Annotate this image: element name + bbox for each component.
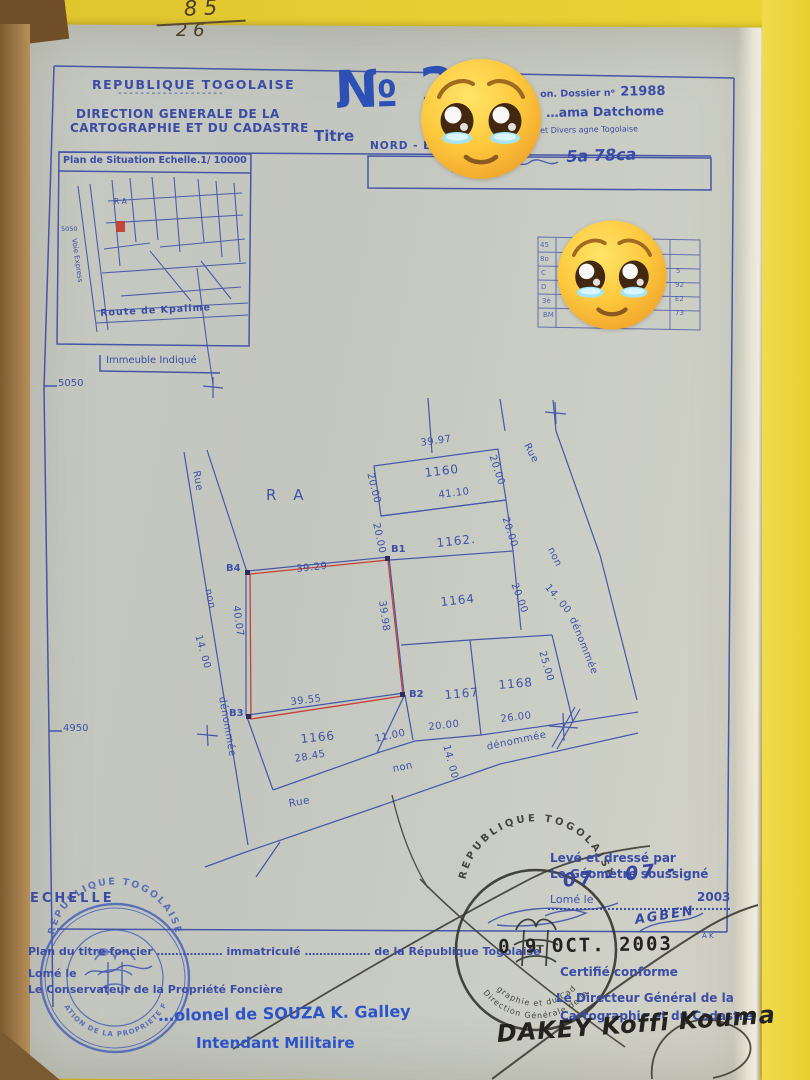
situation-coord-label: 5050 bbox=[61, 226, 78, 233]
table-fragment: 8o bbox=[540, 256, 549, 263]
direction-line1: DIRECTION GENERALE DE LA bbox=[76, 108, 280, 121]
table-fragment: D bbox=[541, 284, 546, 291]
red-parcel-outline bbox=[250, 560, 403, 719]
situation-ra-label: R A bbox=[114, 198, 127, 206]
dossier-prefix: on. Dossier nᵒ bbox=[540, 88, 615, 100]
borne-b2: B2 bbox=[409, 690, 424, 701]
certifie-conforme: Certifié conforme bbox=[560, 966, 678, 979]
zone-ra-label: R A bbox=[266, 488, 309, 504]
table-value: 73 bbox=[675, 310, 684, 317]
echelle-label: ECHELLE bbox=[30, 892, 115, 906]
title-deed-line: Plan du titre foncier ……………… immatriculé… bbox=[28, 946, 541, 958]
surface-value: 5a 78ca bbox=[566, 147, 637, 166]
titre-label: Titre bbox=[314, 129, 354, 145]
table-value: 5 bbox=[676, 268, 680, 275]
situation-title: Plan de Situation Echelle.1/ 10000 bbox=[63, 156, 247, 166]
printed-year: 2003 bbox=[697, 891, 730, 904]
table-value: E2 bbox=[675, 296, 684, 303]
parcel-1168: 1168 bbox=[498, 676, 534, 692]
dossier-number: 21988 bbox=[620, 84, 665, 100]
table-fragment: 45 bbox=[540, 242, 549, 249]
immeuble-indique-label: Immeuble Indiqué bbox=[106, 356, 197, 367]
boundary-corner-markers bbox=[245, 556, 405, 719]
table-fragment: 3è bbox=[542, 298, 551, 305]
borne-b4: B4 bbox=[226, 564, 241, 575]
dossier-line: on. Dossier nᵒ 21988 bbox=[540, 82, 666, 101]
borne-b1: B1 bbox=[391, 545, 406, 556]
photo-of-cadastral-plan: 2 6 8 5 bbox=[0, 0, 810, 1080]
date-stamp: 0 9 OCT. 2003 bbox=[498, 935, 673, 958]
situation-map-lines bbox=[78, 177, 248, 384]
directeur-line1: Le Directeur Général de la bbox=[556, 992, 734, 1005]
direction-line2: CARTOGRAPHIE ET DU CADASTRE bbox=[70, 122, 309, 135]
republic-underline: ------------------- bbox=[118, 89, 225, 100]
face-holding-back-tears-emoji bbox=[416, 54, 546, 184]
parcel-1167: 1167 bbox=[444, 686, 480, 702]
grid-coordinate-top: 5050 bbox=[58, 379, 83, 390]
intendant-title: Intendant Militaire bbox=[196, 1036, 355, 1052]
conservateur-line: Le Conservateur de la Propriété Foncière bbox=[28, 984, 283, 996]
street-name-left: Rue bbox=[190, 470, 204, 492]
holder-name-line2: et Divers agne Togolaise bbox=[540, 125, 638, 135]
table-fragment: C bbox=[541, 270, 546, 277]
table-value: 92 bbox=[675, 282, 684, 289]
holder-name-line: …ama Datchome bbox=[546, 104, 664, 119]
grid-coordinate-bottom: 4950 bbox=[63, 724, 88, 735]
signature-initials: A K bbox=[702, 933, 714, 940]
borne-b3: B3 bbox=[229, 709, 244, 720]
situation-parcel-marker bbox=[116, 221, 125, 232]
lome-le-left: Lomé le bbox=[28, 968, 77, 980]
face-holding-back-tears-emoji bbox=[553, 216, 671, 334]
